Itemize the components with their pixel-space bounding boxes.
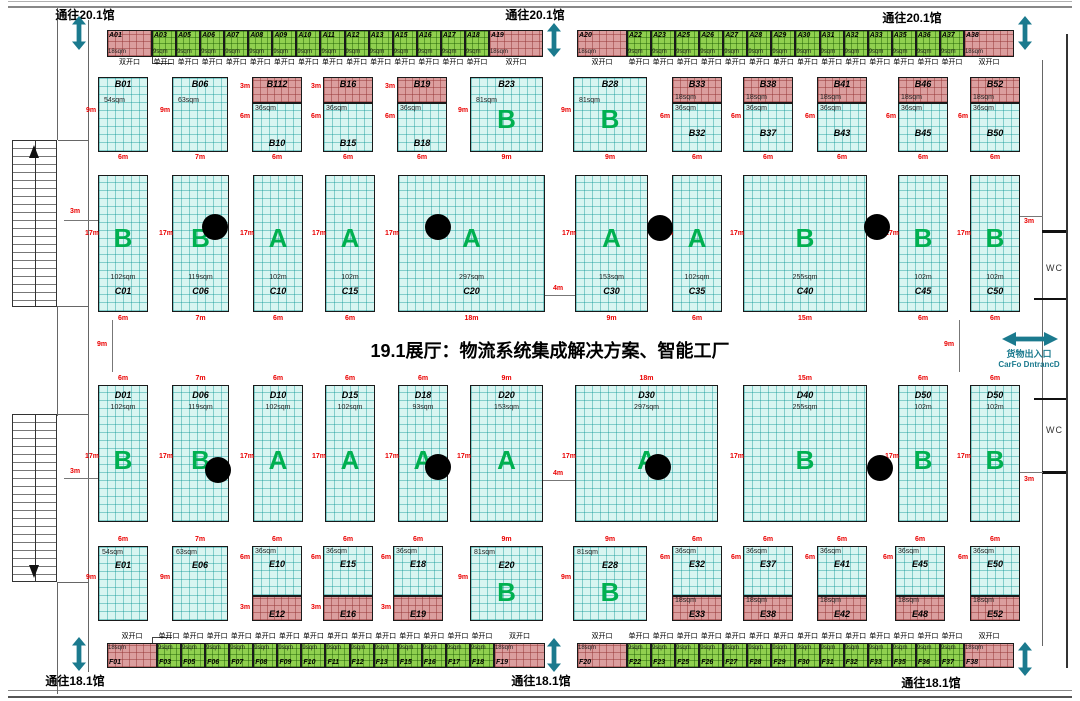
- booth-sqm-label: 18sqm: [965, 49, 983, 55]
- dim-label: 9m: [160, 107, 170, 115]
- booth-id-label: E50: [970, 560, 1020, 570]
- opening-label: 双开口: [489, 59, 543, 67]
- dim-label: 9m: [944, 341, 954, 349]
- booth-sqm-label: 102m: [898, 274, 948, 282]
- booth-id-label: F36: [918, 659, 930, 667]
- booth-id-label: F37: [942, 659, 954, 667]
- booth-sqm-label: 9sqm: [917, 645, 932, 651]
- booth-sqm-label: 9sqm: [158, 645, 173, 651]
- dim-label: 6m: [898, 154, 948, 162]
- dim-label: 6m: [240, 554, 250, 562]
- direction-arrow-icon: [547, 638, 561, 672]
- booth-sqm-label: 9sqm: [700, 49, 715, 55]
- opening-label: 单开口: [272, 59, 296, 67]
- dim-label: 6m: [323, 536, 373, 544]
- exhibition-floor-plan: 通往20.1馆 通往20.1馆 通往20.1馆 通往18.1馆 通往18.1馆 …: [0, 0, 1080, 701]
- booth-id-label: B19: [397, 80, 447, 90]
- dim-label: 17m: [240, 453, 254, 461]
- dimension-line: [543, 480, 575, 481]
- booth-id-label: A22: [629, 32, 642, 40]
- booth-id-label: F32: [846, 659, 858, 667]
- booth-sqm-label: 18sqm: [746, 94, 767, 102]
- booth-sqm-label: 36sqm: [898, 548, 919, 556]
- booth-sqm-label: 102sqm: [325, 404, 375, 412]
- dim-label: 6m: [252, 536, 302, 544]
- wall-segment: [8, 696, 1072, 698]
- booth-sqm-label: 102sqm: [98, 404, 148, 412]
- opening-label: 单开口: [940, 59, 964, 67]
- booth-id-label: E15: [323, 560, 373, 570]
- staircase-upper: [12, 140, 57, 307]
- dim-label: 17m: [85, 230, 99, 238]
- opening-label: 单开口: [152, 59, 176, 67]
- booth-id-label: C06: [172, 287, 229, 297]
- booth-sqm-label: 36sqm: [746, 105, 767, 113]
- booth-sqm-label: 36sqm: [326, 548, 347, 556]
- booth-sqm-label: 9sqm: [652, 49, 667, 55]
- opening-label: 单开口: [374, 633, 398, 641]
- booth-id-label: E32: [672, 560, 722, 570]
- opening-label: 双开口: [107, 59, 152, 67]
- booth-id-label: B41: [817, 80, 867, 90]
- booth-id-label: F28: [749, 659, 761, 667]
- pillar: [867, 455, 893, 481]
- dim-label: 6m: [98, 154, 148, 162]
- booth-id-label: F26: [701, 659, 713, 667]
- dim-label: 6m: [731, 554, 741, 562]
- zone-letter: A: [341, 447, 360, 473]
- booth-sqm-label: 102sqm: [672, 274, 722, 282]
- dim-label: 6m: [385, 113, 395, 121]
- booth-id-label: E18: [393, 560, 443, 570]
- booth-id-label: A33: [870, 32, 883, 40]
- opening-label: 单开口: [868, 633, 892, 641]
- booth-id-label: F20: [579, 659, 591, 667]
- booth-sqm-label: 54sqm: [102, 549, 123, 557]
- booth-sqm-label: 18sqm: [898, 597, 919, 605]
- booth-id-label: F13: [376, 659, 388, 667]
- dim-label: 6m: [660, 554, 670, 562]
- pillar: [864, 214, 890, 240]
- booth-id-label: A26: [701, 32, 714, 40]
- opening-label: 单开口: [916, 633, 940, 641]
- booth-id-label: F06: [207, 659, 219, 667]
- booth-sqm-label: 36sqm: [326, 105, 347, 113]
- booth-sqm-label: 9sqm: [297, 49, 312, 55]
- booth-id-label: F15: [400, 659, 412, 667]
- dim-label: 6m: [970, 536, 1020, 544]
- direction-arrow-icon: [1018, 16, 1032, 50]
- zone-letter: A: [269, 225, 288, 251]
- dim-label: 17m: [957, 453, 971, 461]
- dim-label: 3m: [70, 468, 80, 476]
- zone-letter: B: [114, 447, 133, 473]
- booth-sqm-label: 9sqm: [893, 645, 908, 651]
- booth-sqm-label: 9sqm: [676, 645, 691, 651]
- booth-sqm-label: 9sqm: [273, 49, 288, 55]
- booth-sqm-label: 18sqm: [973, 94, 994, 102]
- booth-sqm-label: 9sqm: [466, 49, 481, 55]
- booth-id-label: A07: [226, 32, 239, 40]
- booth-sqm-label: 9sqm: [375, 645, 390, 651]
- opening-label: 单开口: [320, 59, 344, 67]
- wall-segment: [57, 306, 58, 416]
- opening-label: 单开口: [723, 59, 747, 67]
- booth-sqm-label: 18sqm: [746, 597, 767, 605]
- cargo-entrance-label-en: CarFo DntrancD: [998, 361, 1059, 370]
- wall-segment: [57, 8, 58, 140]
- booth-sqm-label: 297sqm: [575, 404, 718, 412]
- opening-label: 单开口: [699, 59, 723, 67]
- booth-id-label: A32: [846, 32, 859, 40]
- booth-sqm-label: 36sqm: [746, 548, 767, 556]
- booth-sqm-label: 9sqm: [201, 49, 216, 55]
- direction-arrow-icon: [72, 637, 86, 671]
- booth-id-label: F11: [327, 659, 339, 667]
- dim-label: 7m: [172, 375, 229, 383]
- booth-sqm-label: 119sqm: [172, 274, 229, 282]
- dim-label: 7m: [172, 315, 229, 323]
- opening-label: 单开口: [345, 59, 369, 67]
- dim-label: 3m: [385, 83, 395, 91]
- booth-id-label: F19: [496, 659, 508, 667]
- dim-label: 3m: [240, 83, 250, 91]
- zone-letter: A: [462, 225, 481, 251]
- booth-sqm-label: 9sqm: [796, 49, 811, 55]
- booth-sqm-label: 9sqm: [351, 645, 366, 651]
- dim-label: 3m: [240, 604, 250, 612]
- dimension-line: [1020, 472, 1043, 473]
- dim-label: 6m: [253, 315, 303, 323]
- page-title: 19.1展厅：物流系统集成解决方案、智能工厂: [370, 341, 729, 363]
- opening-label: 单开口: [844, 633, 868, 641]
- dim-label: 9m: [561, 107, 571, 115]
- booth-sqm-label: 9sqm: [177, 49, 192, 55]
- zone-letter: A: [269, 447, 288, 473]
- dim-label: 6m: [325, 375, 375, 383]
- opening-label: 单开口: [916, 59, 940, 67]
- dim-label: 6m: [895, 536, 945, 544]
- booth-id-label: D10: [253, 391, 303, 401]
- booth-sqm-label: 9sqm: [748, 645, 763, 651]
- opening-label: 双开口: [577, 59, 627, 67]
- booth-id-label: A18: [467, 32, 480, 40]
- dim-label: 6m: [817, 154, 867, 162]
- dim-label: 9m: [86, 574, 96, 582]
- dim-label: 6m: [886, 113, 896, 121]
- opening-label: 单开口: [771, 633, 795, 641]
- booth-id-label: A19: [491, 32, 504, 40]
- booth-sqm-label: 18sqm: [901, 94, 922, 102]
- booth-id-label: A28: [749, 32, 762, 40]
- opening-label: 单开口: [892, 633, 916, 641]
- booth-id-label: B23: [470, 80, 543, 90]
- booth-id-label: E06: [172, 561, 228, 571]
- booth-sqm-label: 9sqm: [447, 645, 462, 651]
- zone-letter: B: [796, 447, 815, 473]
- wc-wall: [1042, 230, 1066, 233]
- dim-label: 6m: [98, 375, 148, 383]
- booth-sqm-label: 9sqm: [676, 49, 691, 55]
- booth-sqm-label: 93sqm: [398, 404, 448, 412]
- booth-id-label: C35: [672, 287, 722, 297]
- booth-sqm-label: 9sqm: [845, 49, 860, 55]
- dim-label: 15m: [743, 375, 867, 383]
- wall-segment: [58, 582, 88, 583]
- dim-label: 17m: [240, 230, 254, 238]
- booth-sqm-label: 9sqm: [206, 645, 221, 651]
- zone-letter: B: [914, 225, 933, 251]
- dimension-line: [959, 320, 960, 372]
- dim-label: 18m: [398, 315, 545, 323]
- dim-label: 9m: [573, 154, 647, 162]
- dim-label: 6m: [898, 315, 948, 323]
- opening-label: 双开口: [577, 633, 627, 641]
- dim-label: 6m: [98, 315, 148, 323]
- direction-arrow-icon: [547, 23, 561, 57]
- booth-id-label: C45: [898, 287, 948, 297]
- dim-label: 3m: [70, 208, 80, 216]
- opening-label: 单开口: [868, 59, 892, 67]
- booth-id-label: A12: [347, 32, 360, 40]
- booth-id-label: F16: [424, 659, 436, 667]
- opening-label: 单开口: [369, 59, 393, 67]
- booth-id-label: A20: [579, 32, 592, 40]
- booth-sqm-label: 9sqm: [230, 645, 245, 651]
- wall-segment: [1066, 34, 1068, 668]
- dim-label: 6m: [805, 554, 815, 562]
- booth-id-label: A17: [443, 32, 456, 40]
- opening-label: 单开口: [253, 633, 277, 641]
- booth-sqm-label: 81sqm: [476, 97, 497, 105]
- booth-id-label: A10: [298, 32, 311, 40]
- zone-letter: A: [497, 447, 516, 473]
- booth-sqm-label: 36sqm: [675, 548, 696, 556]
- booth-id-label: A13: [371, 32, 384, 40]
- booth-id-label: E10: [252, 560, 302, 570]
- cargo-entrance-label: 货物出入口: [1006, 350, 1051, 360]
- dim-label: 17m: [159, 230, 173, 238]
- booth-sqm-label: 9sqm: [225, 49, 240, 55]
- booth-id-label: A29: [773, 32, 786, 40]
- dim-label: 6m: [381, 554, 391, 562]
- zone-letter: B: [796, 225, 815, 251]
- dim-label: 6m: [311, 554, 321, 562]
- opening-label: 单开口: [820, 633, 844, 641]
- opening-label: 双开口: [964, 633, 1014, 641]
- booth-sqm-label: 9sqm: [845, 645, 860, 651]
- booth-E06: [172, 546, 228, 621]
- booth-id-label: B112: [252, 80, 302, 90]
- booth-sqm-label: 9sqm: [399, 645, 414, 651]
- wc-wall: [1034, 398, 1066, 400]
- dim-label: 15m: [743, 315, 867, 323]
- booth-id-label: B01: [98, 80, 148, 90]
- booth-id-label: D30: [575, 391, 718, 401]
- booth-sqm-label: 9sqm: [796, 645, 811, 651]
- booth-sqm-label: 153sqm: [470, 404, 543, 412]
- dim-label: 17m: [385, 453, 399, 461]
- opening-label: 单开口: [417, 59, 441, 67]
- booth-sqm-label: 9sqm: [628, 645, 643, 651]
- booth-id-label: F35: [894, 659, 906, 667]
- opening-label: 双开口: [964, 59, 1014, 67]
- dim-label: 3m: [1024, 218, 1034, 226]
- pillar: [647, 215, 673, 241]
- opening-label: 单开口: [675, 59, 699, 67]
- dim-label: 17m: [562, 230, 576, 238]
- dim-label: 6m: [970, 375, 1020, 383]
- booth-id-label: E38: [743, 610, 793, 620]
- booth-sqm-label: 9sqm: [941, 645, 956, 651]
- dim-label: 6m: [817, 536, 867, 544]
- booth-id-label: E41: [817, 560, 867, 570]
- booth-sqm-label: 9sqm: [628, 49, 643, 55]
- booth-sqm-label: 18sqm: [820, 597, 841, 605]
- wall-segment: [8, 1, 1072, 2]
- booth-id-label: B28: [573, 80, 647, 90]
- dim-label: 6m: [240, 113, 250, 121]
- opening-label: 双开口: [494, 633, 545, 641]
- booth-sqm-label: 102m: [970, 404, 1020, 412]
- zone-letter: A: [688, 225, 707, 251]
- dim-label: 17m: [312, 453, 326, 461]
- opening-label: 单开口: [224, 59, 248, 67]
- booth-sqm-label: 9sqm: [821, 645, 836, 651]
- booth-id-label: E12: [252, 610, 302, 620]
- booth-sqm-label: 18sqm: [675, 597, 696, 605]
- opening-label: 单开口: [820, 59, 844, 67]
- booth-sqm-label: 36sqm: [396, 548, 417, 556]
- booth-id-label: F30: [797, 659, 809, 667]
- hall-label-top-right: 通往20.1馆: [882, 12, 941, 25]
- booth-sqm-label: 9sqm: [821, 49, 836, 55]
- booth-id-label: D50: [898, 391, 948, 401]
- dim-label: 6m: [672, 536, 722, 544]
- booth-id-label: F27: [725, 659, 737, 667]
- booth-id-label: B10: [252, 139, 302, 149]
- opening-label: 单开口: [422, 633, 446, 641]
- booth-sqm-label: 297sqm: [398, 274, 545, 282]
- dim-label: 3m: [311, 83, 321, 91]
- booth-id-label: B43: [817, 129, 867, 139]
- dimension-line: [112, 320, 113, 372]
- dim-label: 6m: [883, 554, 893, 562]
- booth-sqm-label: 36sqm: [901, 105, 922, 113]
- booth-sqm-label: 9sqm: [724, 645, 739, 651]
- booth-sqm-label: 54sqm: [104, 97, 125, 105]
- booth-sqm-label: 255sqm: [743, 404, 867, 412]
- dimension-line: [1020, 216, 1043, 217]
- booth-id-label: A16: [419, 32, 432, 40]
- booth-id-label: F05: [183, 659, 195, 667]
- dim-label: 6m: [252, 154, 302, 162]
- booth-id-label: E16: [323, 610, 373, 620]
- dim-label: 9m: [86, 107, 96, 115]
- dim-label: 9m: [470, 375, 543, 383]
- booth-sqm-label: 9sqm: [772, 49, 787, 55]
- dim-label: 9m: [573, 536, 647, 544]
- dim-label: 6m: [958, 113, 968, 121]
- wc-label-lower: WC: [1046, 426, 1063, 435]
- booth-id-label: B46: [898, 80, 948, 90]
- opening-label: 单开口: [699, 633, 723, 641]
- dim-label: 18m: [575, 375, 718, 383]
- booth-sqm-label: 18sqm: [108, 49, 126, 55]
- booth-sqm-label: 9sqm: [423, 645, 438, 651]
- dim-label: 6m: [898, 375, 948, 383]
- booth-sqm-label: 36sqm: [973, 105, 994, 113]
- booth-id-label: F08: [255, 659, 267, 667]
- opening-label: 单开口: [441, 59, 465, 67]
- opening-label: 单开口: [771, 59, 795, 67]
- booth-id-label: B52: [970, 80, 1020, 90]
- booth-sqm-label: 9sqm: [346, 49, 361, 55]
- booth-id-label: F25: [677, 659, 689, 667]
- wc-label-upper: WC: [1046, 264, 1063, 273]
- booth-id-label: B16: [323, 80, 373, 90]
- hall-label-bottom-right: 通往18.1馆: [901, 677, 960, 690]
- zone-letter: A: [341, 225, 360, 251]
- opening-label: 单开口: [651, 633, 675, 641]
- booth-id-label: F38: [966, 659, 978, 667]
- booth-id-label: F22: [629, 659, 641, 667]
- opening-label: 单开口: [627, 633, 651, 641]
- dim-label: 9m: [561, 574, 571, 582]
- opening-label: 单开口: [747, 633, 771, 641]
- direction-arrow-icon: [1018, 642, 1032, 676]
- booth-sqm-label: 9sqm: [772, 645, 787, 651]
- dim-label: 17m: [730, 453, 744, 461]
- pillar: [425, 214, 451, 240]
- booth-sqm-label: 9sqm: [326, 645, 341, 651]
- booth-id-label: F29: [773, 659, 785, 667]
- dim-label: 6m: [398, 375, 448, 383]
- dim-label: 6m: [672, 315, 722, 323]
- pillar: [645, 454, 671, 480]
- pillar: [425, 454, 451, 480]
- booth-id-label: D50: [970, 391, 1020, 401]
- wall-segment: [58, 306, 88, 307]
- booth-id-label: A06: [202, 32, 215, 40]
- dim-label: 6m: [970, 154, 1020, 162]
- zone-letter: B: [601, 106, 620, 132]
- dim-label: 7m: [172, 536, 228, 544]
- zone-letter: B: [986, 447, 1005, 473]
- dim-label: 3m: [311, 604, 321, 612]
- booth-id-label: C40: [743, 287, 867, 297]
- booth-id-label: F23: [653, 659, 665, 667]
- booth-id-label: E28: [573, 561, 647, 571]
- dim-label: 6m: [393, 536, 443, 544]
- dim-label: 9m: [458, 574, 468, 582]
- zone-letter: B: [986, 225, 1005, 251]
- booth-sqm-label: 102m: [325, 274, 375, 282]
- dim-label: 6m: [731, 113, 741, 121]
- booth-sqm-label: 102m: [253, 274, 303, 282]
- booth-id-label: A23: [653, 32, 666, 40]
- dim-label: 6m: [743, 536, 793, 544]
- booth-sqm-label: 18sqm: [578, 49, 596, 55]
- hall-label-top-left: 通往20.1馆: [55, 9, 114, 22]
- dim-label: 3m: [381, 604, 391, 612]
- dimension-line: [545, 295, 575, 296]
- dim-label: 6m: [672, 154, 722, 162]
- booth-sqm-label: 18sqm: [965, 645, 983, 651]
- booth-sqm-label: 18sqm: [675, 94, 696, 102]
- booth-id-label: E33: [672, 610, 722, 620]
- booth-sqm-label: 18sqm: [578, 645, 596, 651]
